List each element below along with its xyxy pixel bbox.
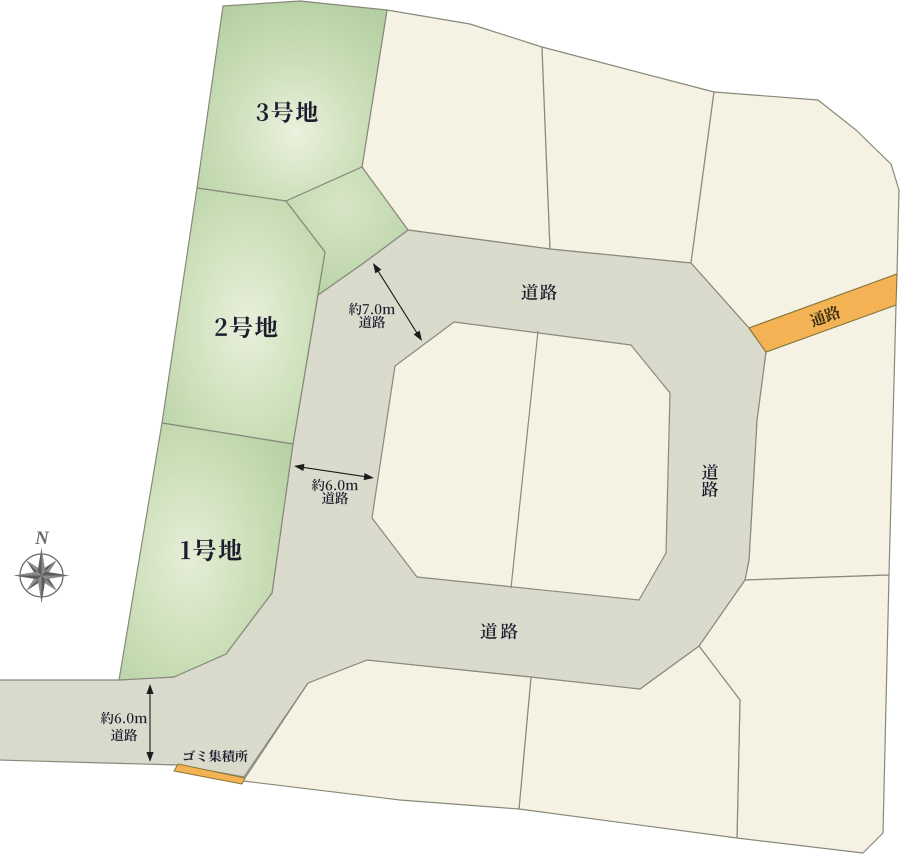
svg-text:N: N [34, 528, 50, 549]
